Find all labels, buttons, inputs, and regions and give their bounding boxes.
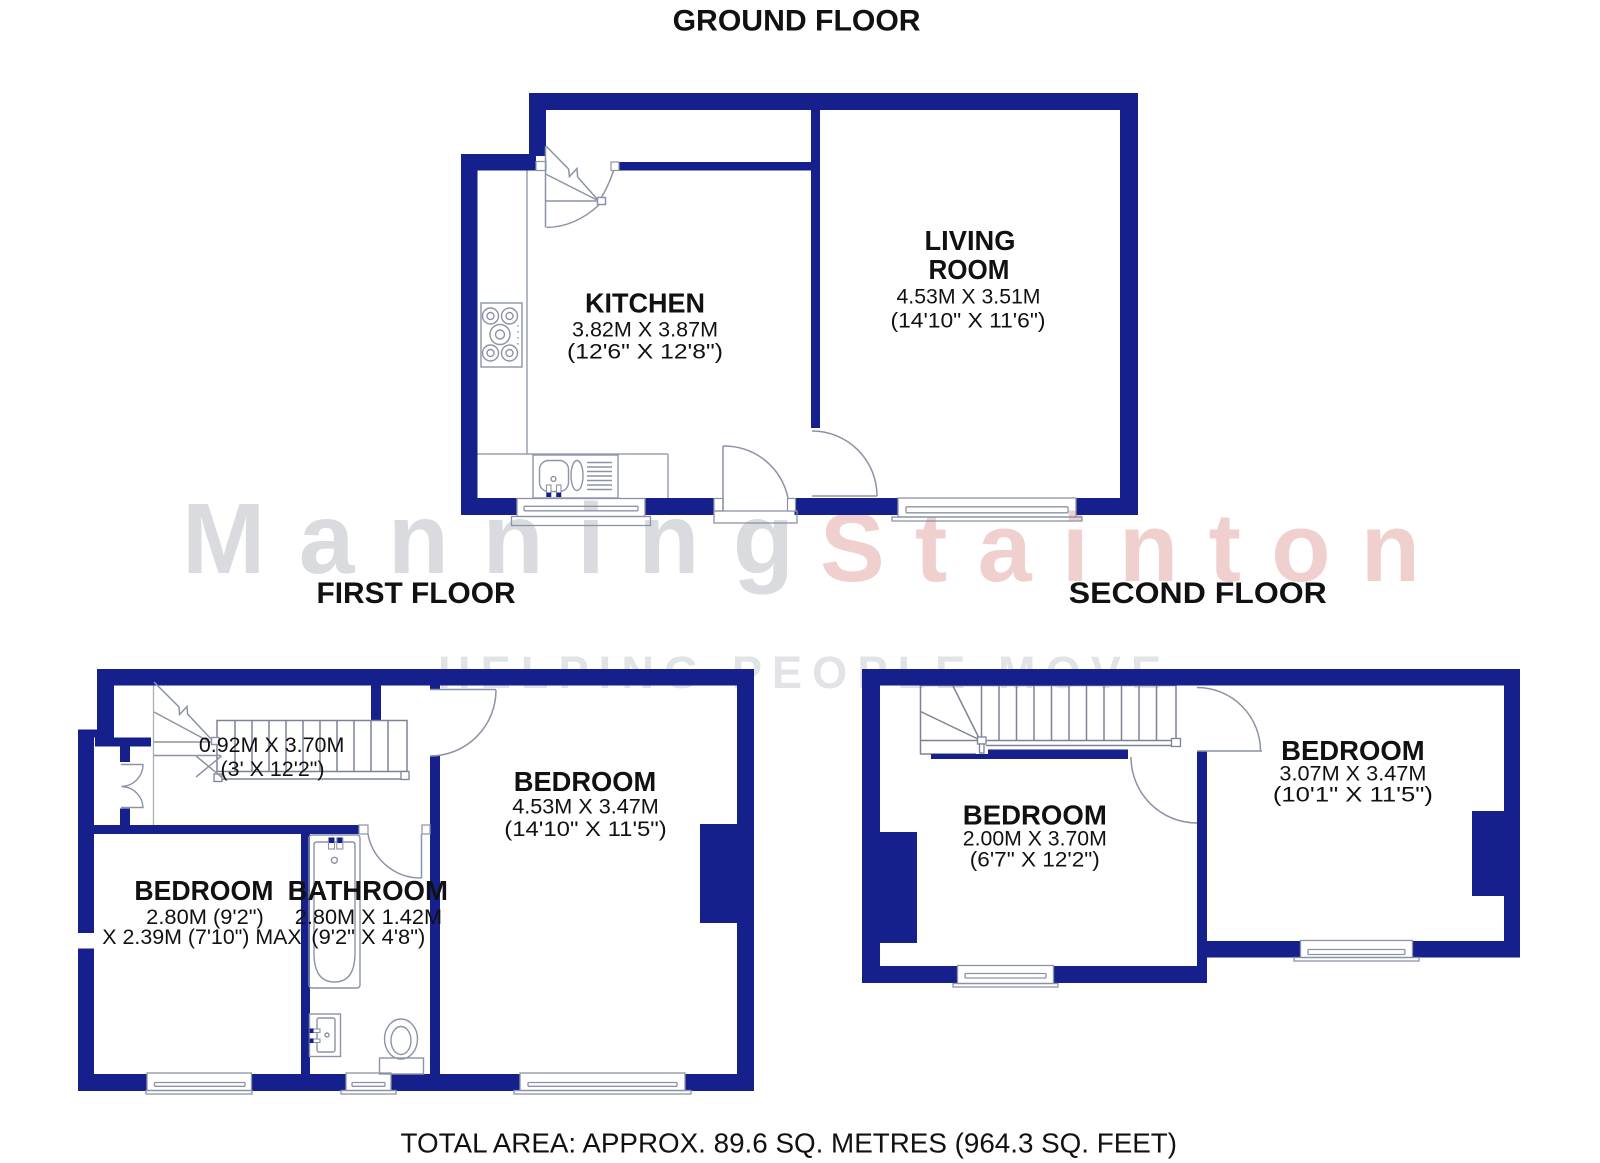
svg-text:4.53M X 3.47M: 4.53M X 3.47M	[512, 794, 659, 818]
svg-text:4.53M X 3.51M: 4.53M X 3.51M	[897, 285, 1041, 309]
svg-text:(6'7" X 12'2"): (6'7" X 12'2")	[970, 848, 1100, 872]
svg-text:GROUND FLOOR: GROUND FLOOR	[673, 4, 921, 37]
svg-text:TOTAL AREA: APPROX. 89.6 SQ. M: TOTAL AREA: APPROX. 89.6 SQ. METRES (964…	[401, 1128, 1178, 1159]
svg-text:0.92M X 3.70M: 0.92M X 3.70M	[199, 733, 345, 757]
svg-text:(10'1" X 11'5"): (10'1" X 11'5")	[1273, 783, 1433, 807]
svg-text:(12'6" X 12'8"): (12'6" X 12'8")	[567, 340, 723, 364]
svg-text:KITCHEN: KITCHEN	[585, 288, 705, 319]
svg-text:3.82M X 3.87M: 3.82M X 3.87M	[572, 318, 718, 342]
svg-text:(9'2" X 4'8"): (9'2" X 4'8")	[311, 925, 425, 949]
svg-text:(14'10" X 11'6"): (14'10" X 11'6")	[891, 309, 1046, 333]
svg-text:(14'10" X 11'5"): (14'10" X 11'5")	[504, 817, 667, 841]
svg-text:BEDROOM: BEDROOM	[514, 766, 657, 797]
svg-text:X 2.39M (7'10") MAX: X 2.39M (7'10") MAX	[102, 925, 301, 949]
svg-text:BEDROOM: BEDROOM	[134, 875, 273, 906]
svg-text:(3' X 12'2"): (3' X 12'2")	[221, 757, 325, 781]
svg-text:FIRST FLOOR: FIRST FLOOR	[317, 577, 516, 610]
svg-text:BATHROOM: BATHROOM	[288, 875, 448, 906]
svg-text:ROOM: ROOM	[929, 254, 1010, 285]
svg-text:LIVING: LIVING	[925, 225, 1016, 256]
svg-text:SECOND FLOOR: SECOND FLOOR	[1069, 577, 1327, 610]
